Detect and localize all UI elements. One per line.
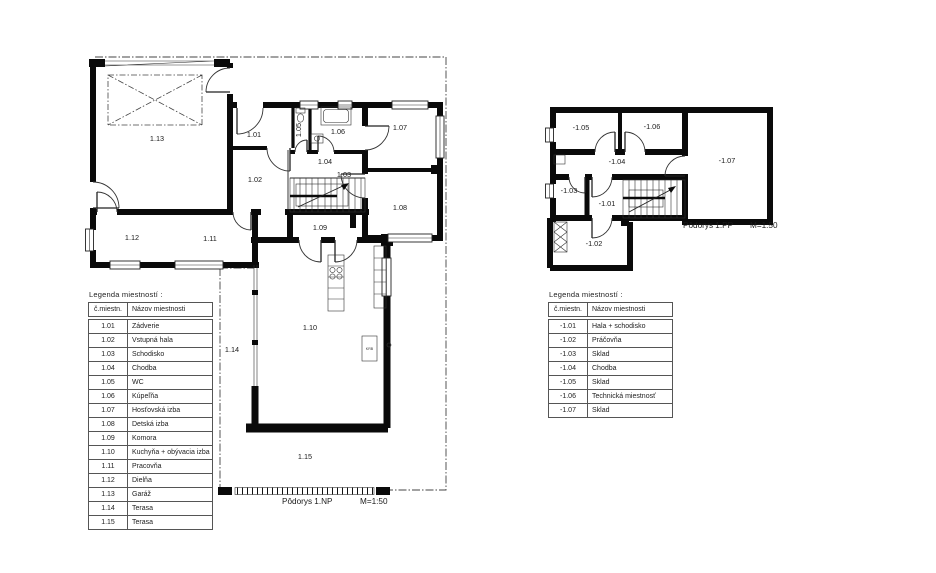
legend-row: -1.04Chodba [549, 362, 673, 376]
legend-row: 1.14Terasa [89, 502, 213, 516]
room-name: Pracovňa [128, 460, 213, 474]
legend-row: 1.08Detská izba [89, 418, 213, 432]
legend-row: -1.06Technická miestnosť [549, 390, 673, 404]
legend-row: -1.02Práčovňa [549, 334, 673, 348]
walls-pp [550, 110, 773, 268]
room-name: Garáž [128, 488, 213, 502]
room-name: Kuchyňa + obývacia izba [128, 446, 213, 460]
room-label-1-01: 1.01 [247, 130, 261, 139]
room-name: Hala + schodisko [588, 320, 673, 334]
legend-pp-title: Legenda miestností : [549, 290, 673, 299]
legend-pp-col-name: Názov miestnosti [588, 303, 673, 317]
room-no: 1.04 [89, 362, 128, 376]
room-name: Schodisko [128, 348, 213, 362]
legend-row: -1.01Hala + schodisko [549, 320, 673, 334]
room-no: 1.08 [89, 418, 128, 432]
room-no: 1.09 [89, 432, 128, 446]
room-label-1-14: 1.14 [225, 345, 239, 354]
room-label--1-02: -1.02 [586, 239, 603, 248]
room-label-1-13: 1.13 [150, 134, 164, 143]
legend-row: 1.11Pracovňa [89, 460, 213, 474]
room-no: -1.02 [549, 334, 588, 348]
legend-row: 1.01Zádverie [89, 320, 213, 334]
room-no: 1.11 [89, 460, 128, 474]
legend-pp-col-no: č.miestn. [549, 303, 588, 317]
room-name: Sklad [588, 404, 673, 418]
room-name: Detská izba [128, 418, 213, 432]
room-label-1-11: 1.11 [203, 234, 217, 243]
room-no: 1.12 [89, 474, 128, 488]
room-no: 1.01 [89, 320, 128, 334]
room-name: Komora [128, 432, 213, 446]
caption-np-scale: M=1:50 [360, 497, 388, 506]
caption-np: Pôdorys 1.NP M=1:50 [282, 497, 388, 506]
room-label-1-09: 1.09 [313, 223, 327, 232]
legend-row: -1.03Sklad [549, 348, 673, 362]
legend-row: 1.13Garáž [89, 488, 213, 502]
room-name: Chodba [128, 362, 213, 376]
room-label--1-06: -1.06 [644, 122, 661, 131]
legend-row: -1.07Sklad [549, 404, 673, 418]
room-label-1-10: 1.10 [303, 323, 317, 332]
room-label-1-12: 1.12 [125, 233, 139, 242]
legend-np-col-name: Názov miestnosti [128, 303, 213, 317]
room-no: -1.07 [549, 404, 588, 418]
legend-row: 1.06Kúpeľňa [89, 390, 213, 404]
terrace-deck-strip [218, 487, 390, 495]
drawing-sheet: KRB 1.13 1.01 1.05 1.06 1.07 1.02 1.04 1… [0, 0, 936, 573]
room-no: -1.01 [549, 320, 588, 334]
room-label--1-03: -1.03 [561, 186, 578, 195]
room-no: 1.14 [89, 502, 128, 516]
room-no: -1.05 [549, 376, 588, 390]
room-no: 1.07 [89, 404, 128, 418]
room-name: Sklad [588, 376, 673, 390]
room-name: Kúpeľňa [128, 390, 213, 404]
kitchen-fixtures [328, 246, 386, 311]
room-no: 1.06 [89, 390, 128, 404]
room-label-1-06: 1.06 [331, 127, 345, 136]
legend-row: 1.07Hosťovská izba [89, 404, 213, 418]
room-name: Technická miestnosť [588, 390, 673, 404]
room-name: WC [128, 376, 213, 390]
room-name: Chodba [588, 362, 673, 376]
room-label--1-01: -1.01 [599, 199, 616, 208]
room-no: -1.04 [549, 362, 588, 376]
room-label-1-03: 1.03 [337, 170, 351, 179]
legend-pp-table: -1.01Hala + schodisko -1.02Práčovňa -1.0… [548, 319, 673, 418]
legend-row: 1.05WC [89, 376, 213, 390]
bathroom-fixtures [296, 107, 351, 143]
room-name: Zádverie [128, 320, 213, 334]
floorplan-pp: -1.05 -1.06 -1.07 -1.04 -1.03 -1.01 -1.0… [545, 100, 785, 275]
fireplace-label: KRB [366, 347, 374, 351]
room-label--1-04: -1.04 [609, 157, 626, 166]
room-no: 1.05 [89, 376, 128, 390]
legend-row: 1.12Dielňa [89, 474, 213, 488]
room-label-1-15: 1.15 [298, 452, 312, 461]
room-label-1-07: 1.07 [393, 123, 407, 132]
caption-pp: Pôdorys 1.PP M=1:50 [683, 221, 778, 230]
stairs-pp [623, 180, 685, 218]
room-label-1-04: 1.04 [318, 157, 332, 166]
room-name: Terasa [128, 502, 213, 516]
room-no: 1.02 [89, 334, 128, 348]
caption-pp-title: Pôdorys 1.PP [683, 221, 734, 230]
legend-row: 1.15Terasa [89, 516, 213, 530]
room-label--1-05: -1.05 [573, 123, 590, 132]
room-name: Práčovňa [588, 334, 673, 348]
legend-np-table: 1.01Zádverie 1.02Vstupná hala 1.03Schodi… [88, 319, 213, 530]
windows-np [86, 101, 445, 296]
legend-np: Legenda miestností : č.miestn. Názov mie… [88, 290, 213, 530]
room-label--1-07: -1.07 [719, 156, 736, 165]
room-name: Sklad [588, 348, 673, 362]
caption-pp-scale: M=1:50 [750, 221, 778, 230]
room-no: 1.15 [89, 516, 128, 530]
room-name: Vstupná hala [128, 334, 213, 348]
legend-row: -1.05Sklad [549, 376, 673, 390]
legend-row: 1.02Vstupná hala [89, 334, 213, 348]
chimney-hatch [554, 222, 567, 252]
room-no: -1.03 [549, 348, 588, 362]
legend-row: 1.03Schodisko [89, 348, 213, 362]
legend-row: 1.09Komora [89, 432, 213, 446]
room-name: Terasa [128, 516, 213, 530]
legend-np-header: č.miestn. Názov miestnosti [88, 302, 213, 317]
room-name: Hosťovská izba [128, 404, 213, 418]
room-label-1-08: 1.08 [393, 203, 407, 212]
room-label-1-05: 1.05 [294, 123, 303, 137]
room-label-1-02: 1.02 [248, 175, 262, 184]
legend-pp: Legenda miestností : č.miestn. Názov mie… [548, 290, 673, 418]
caption-np-title: Pôdorys 1.NP [282, 497, 333, 506]
legend-row: 1.10Kuchyňa + obývacia izba [89, 446, 213, 460]
room-name: Dielňa [128, 474, 213, 488]
legend-pp-header: č.miestn. Názov miestnosti [548, 302, 673, 317]
room-no: 1.03 [89, 348, 128, 362]
room-no: 1.13 [89, 488, 128, 502]
legend-np-col-no: č.miestn. [89, 303, 128, 317]
room-no: -1.06 [549, 390, 588, 404]
legend-np-title: Legenda miestností : [89, 290, 213, 299]
legend-row: 1.04Chodba [89, 362, 213, 376]
room-no: 1.10 [89, 446, 128, 460]
